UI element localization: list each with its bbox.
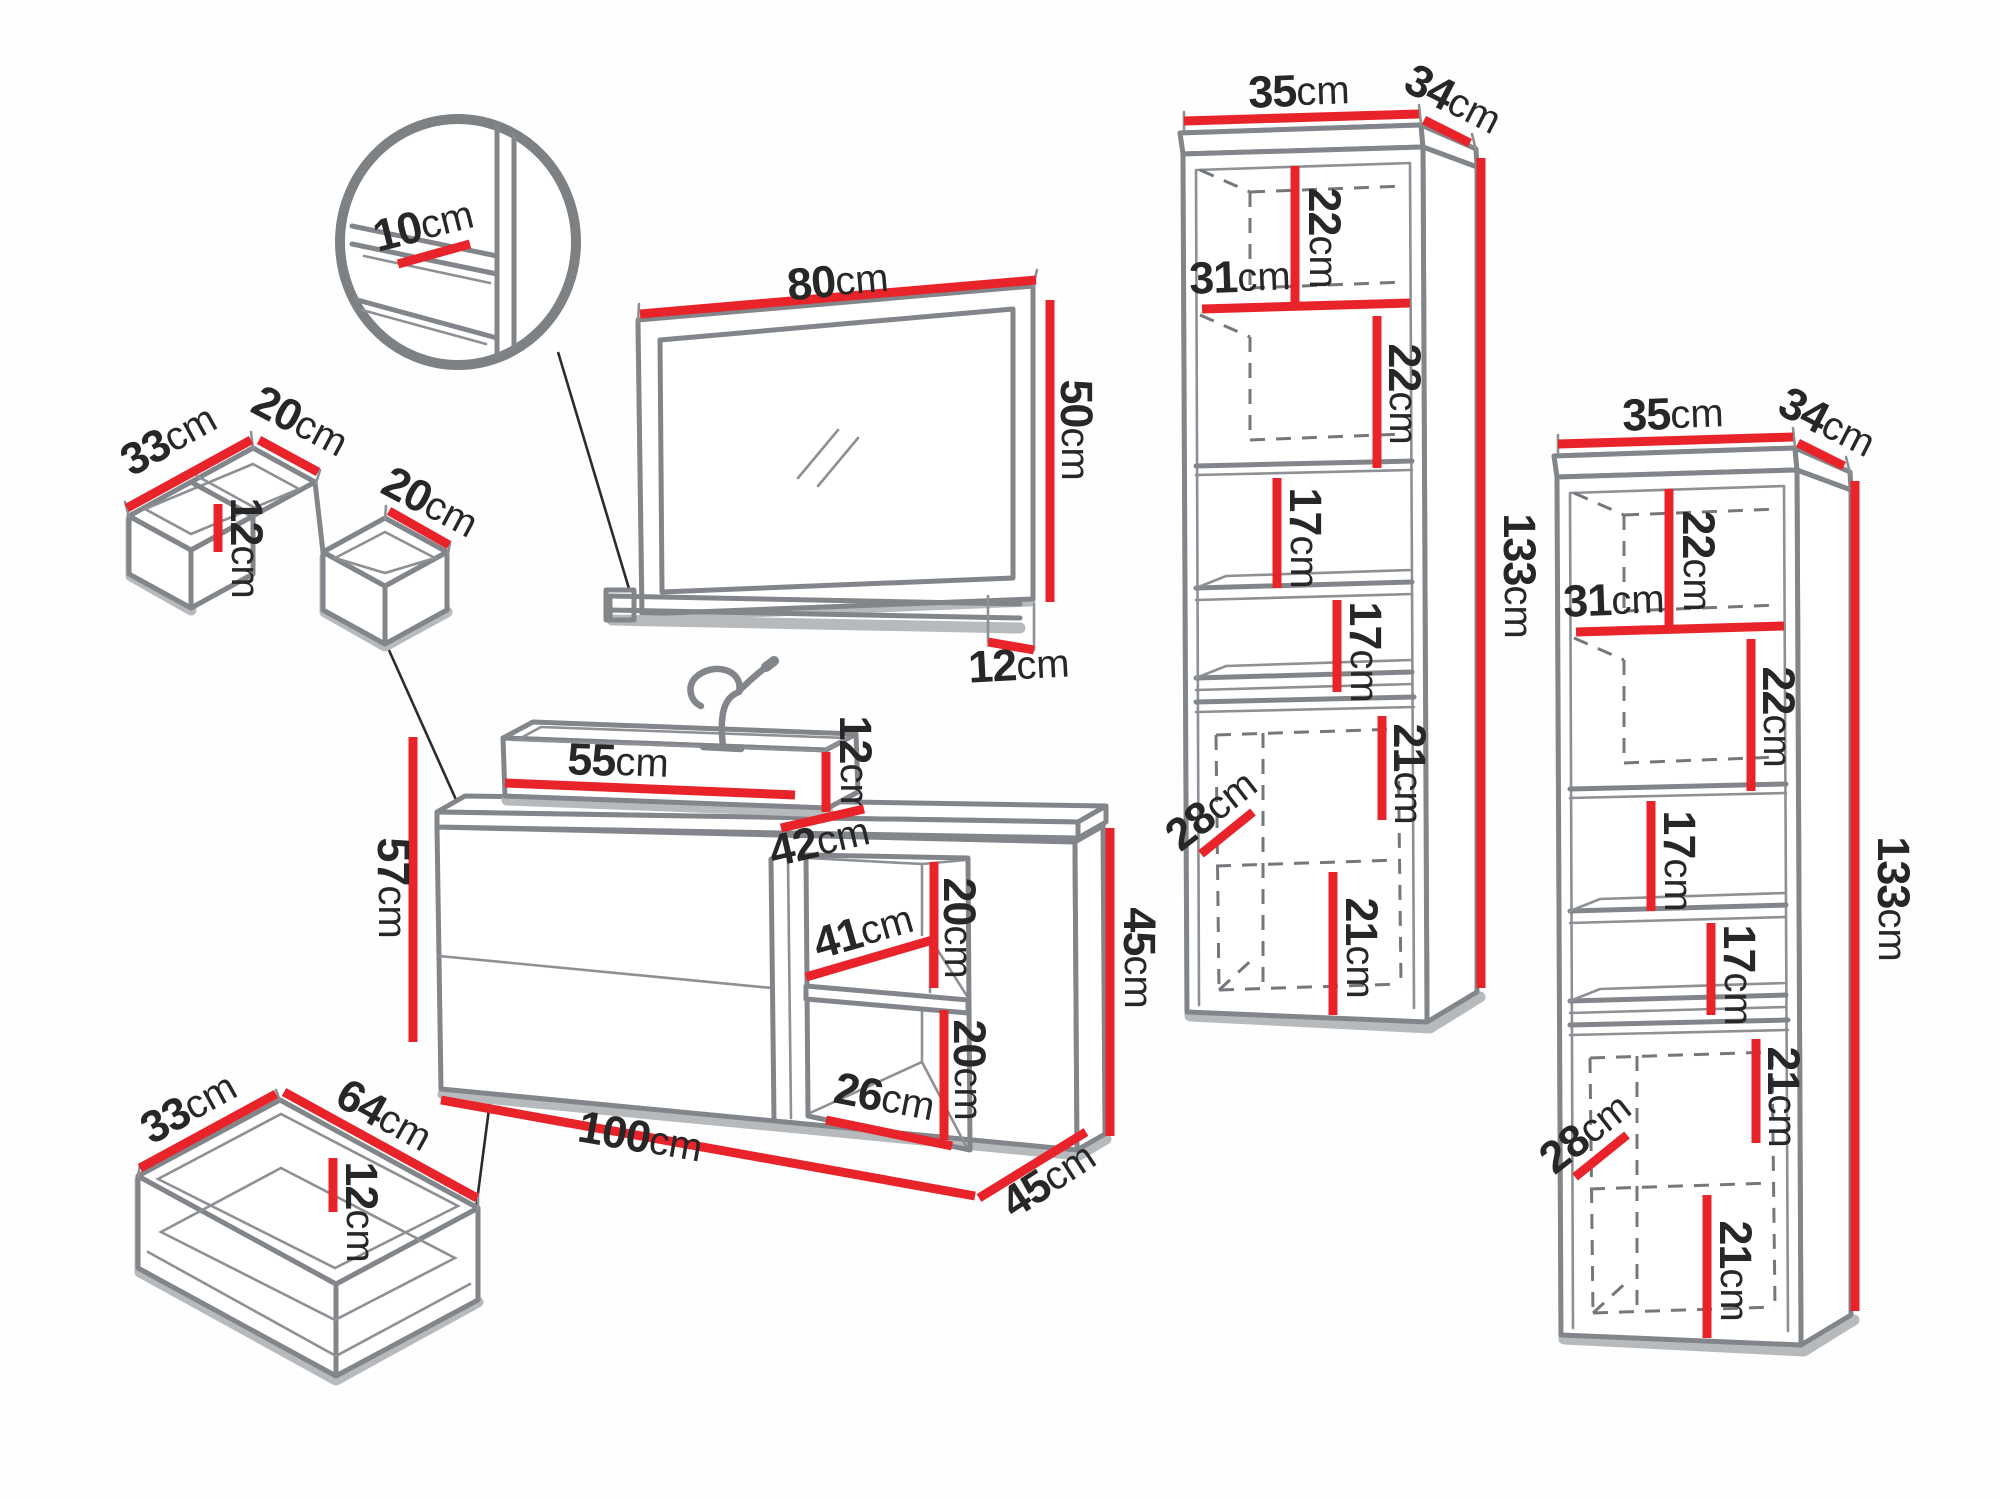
diagram-canvas: 10cm 80cm 50cm 12cm [0, 0, 2000, 1499]
cabinet1-fourth-section-label: 17cm [1340, 601, 1391, 702]
drawer-organizer: 33cm 20cm 12cm 20cm [112, 374, 488, 646]
cabinet2-fourth-section-label: 17cm [1714, 924, 1765, 1025]
vanity-cabinet: 55cm 12cm 42cm 57cm 41cm 20cm 20cm 26cm … [368, 661, 1165, 1228]
cabinet2-door-lower-label: 21cm [1710, 1220, 1761, 1321]
cabinet2-shelf-width-label: 31cm [1562, 572, 1665, 627]
cabinet1-total-height-label: 133cm [1494, 513, 1545, 638]
vanity-side-height-label: 45cm [1114, 907, 1165, 1008]
cabinet2-third-section-label: 17cm [1654, 810, 1705, 911]
tall-cabinet-2: 35cm 34cm 22cm 31cm 22cm 17cm 17cm 21cm … [1529, 376, 1919, 1351]
bottom-drawer: 33cm 64cm 12cm [132, 1060, 478, 1380]
vanity-front-height-label: 57cm [368, 837, 419, 938]
cabinet2-side-face [1797, 470, 1851, 1345]
organizer-height-label: 12cm [221, 497, 272, 598]
cabinet2-second-section-label: 22cm [1753, 666, 1804, 767]
drawer-height-label: 12cm [336, 1161, 387, 1262]
cabinet1-shelf-width-label: 31cm [1188, 249, 1291, 304]
cabinet2-total-height-label: 133cm [1868, 836, 1919, 961]
detail-circle: 10cm [340, 110, 576, 380]
cabinet1-shelf-width-line [1202, 303, 1410, 309]
cabinet1-width-label: 35cm [1247, 63, 1350, 118]
mirror-height-label: 50cm [1051, 379, 1102, 480]
cabinet2-door-upper-label: 21cm [1758, 1046, 1809, 1147]
niche-bottom-height-label: 20cm [944, 1019, 995, 1120]
cabinet1-third-section-label: 17cm [1280, 487, 1331, 588]
cabinet2-width-label: 35cm [1621, 386, 1724, 441]
mirror-shelf-depth-label: 12cm [967, 636, 1071, 692]
cabinet1-door-upper-label: 21cm [1384, 723, 1435, 824]
furniture-dimension-diagram: 10cm 80cm 50cm 12cm [0, 0, 2000, 1499]
niche-top-height-label: 20cm [934, 877, 985, 978]
vanity-side-face [1075, 826, 1105, 1150]
sink-height-label: 12cm [830, 715, 881, 816]
tall-cabinet-1: 35cm 34cm 22cm 31cm 22cm 17cm 17cm 21cm … [1155, 53, 1545, 1028]
cabinet2-top-section-label: 22cm [1673, 510, 1724, 611]
cabinet1-second-section-label: 22cm [1379, 343, 1430, 444]
leader-circle-to-mirror-shelf [558, 352, 630, 592]
cabinet1-door-lower-label: 21cm [1336, 897, 1387, 998]
cabinet1-side-face [1423, 147, 1477, 1022]
mirror: 80cm 50cm 12cm [606, 251, 1102, 693]
cabinet1-width-line [1184, 114, 1419, 121]
sink-width-label: 55cm [567, 733, 670, 788]
cabinet1-top-section-label: 22cm [1299, 187, 1350, 288]
cabinet2-shelf-width-line [1576, 626, 1784, 632]
cabinet2-width-line [1558, 437, 1793, 444]
